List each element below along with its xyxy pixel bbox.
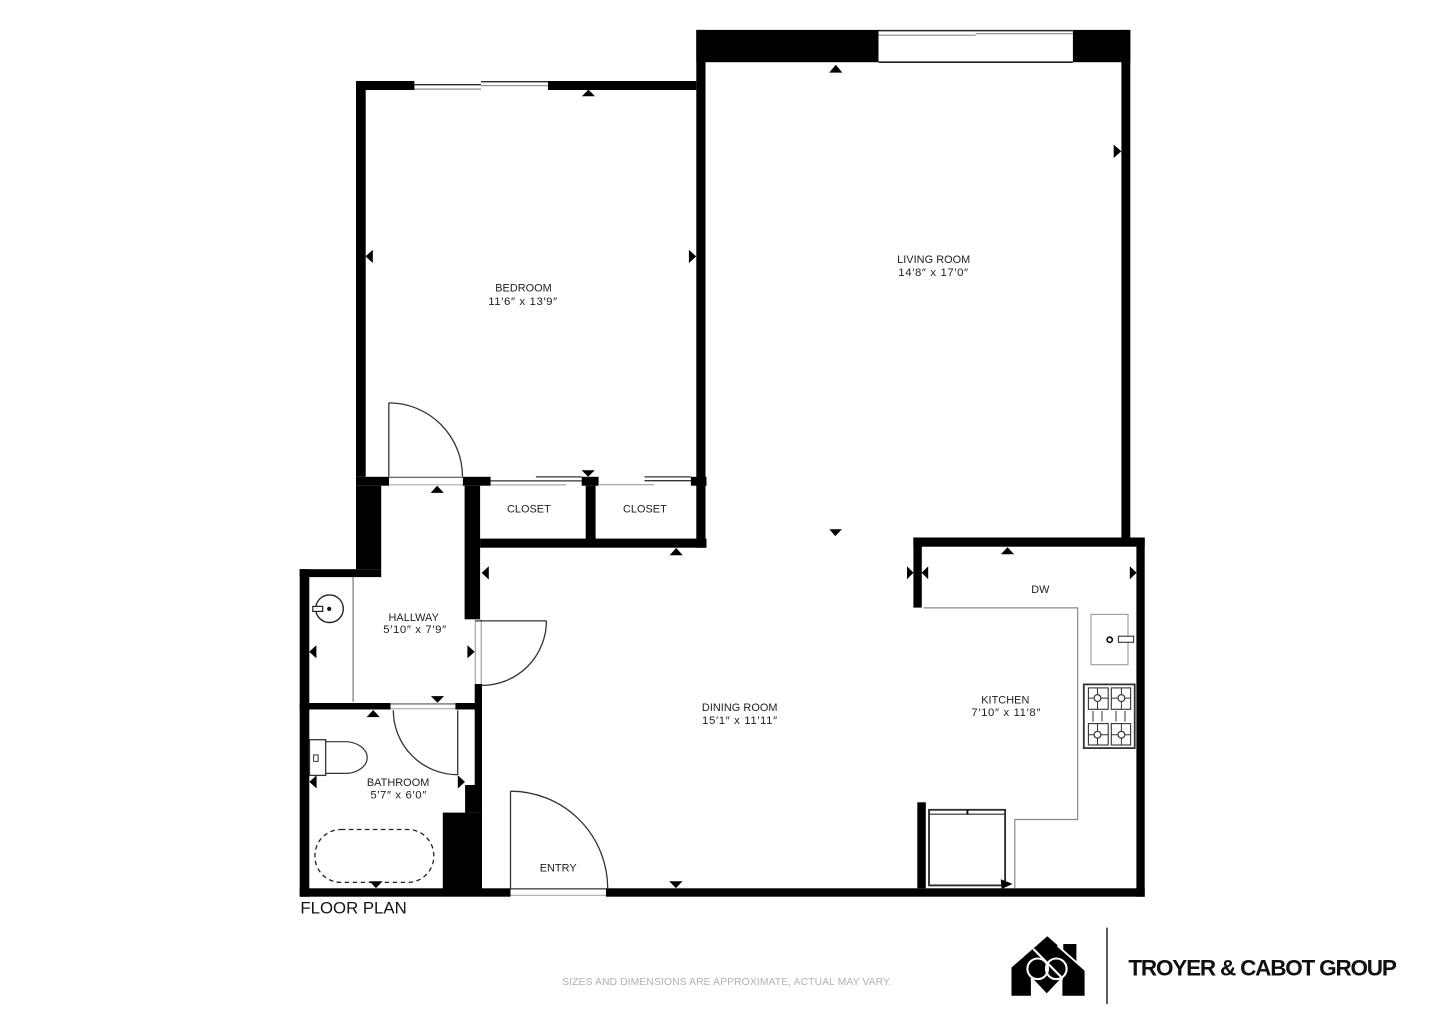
svg-text:11′6″ x 13′9″: 11′6″ x 13′9″ — [488, 296, 558, 308]
svg-text:DW: DW — [1031, 584, 1050, 596]
svg-text:5′7″ x 6′0″: 5′7″ x 6′0″ — [370, 790, 427, 802]
svg-text:LIVING ROOM: LIVING ROOM — [897, 254, 970, 266]
svg-text:15′1″ x 11′11″: 15′1″ x 11′11″ — [702, 715, 778, 727]
svg-text:CLOSET: CLOSET — [623, 503, 667, 515]
svg-text:TROYER & CABOT GROUP: TROYER & CABOT GROUP — [1128, 955, 1396, 980]
svg-text:HALLWAY: HALLWAY — [389, 612, 440, 624]
svg-text:BATHROOM: BATHROOM — [367, 777, 430, 789]
svg-text:CLOSET: CLOSET — [507, 503, 551, 515]
svg-text:SIZES AND DIMENSIONS ARE APPRO: SIZES AND DIMENSIONS ARE APPROXIMATE, AC… — [562, 977, 891, 988]
svg-text:KITCHEN: KITCHEN — [981, 695, 1029, 707]
svg-text:7′10″ x 11′8″: 7′10″ x 11′8″ — [971, 707, 1041, 719]
svg-text:5′10″ x 7′9″: 5′10″ x 7′9″ — [383, 624, 446, 636]
svg-text:BEDROOM: BEDROOM — [495, 282, 552, 294]
svg-text:14′8″ x 17′0″: 14′8″ x 17′0″ — [898, 267, 968, 279]
svg-text:DINING ROOM: DINING ROOM — [702, 702, 778, 714]
svg-text:ENTRY: ENTRY — [540, 863, 578, 875]
svg-text:FLOOR PLAN: FLOOR PLAN — [300, 899, 406, 918]
